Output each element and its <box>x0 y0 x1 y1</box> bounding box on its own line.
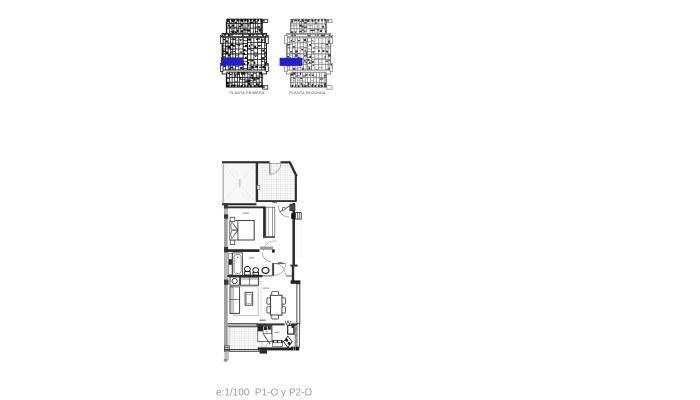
svg-text:e:1/100 P1-O y P2-O: e:1/100 P1-O y P2-O <box>216 387 312 398</box>
svg-text:PLANTA SEGUNDA: PLANTA SEGUNDA <box>289 91 326 95</box>
svg-text:PLANTA PRIMERA: PLANTA PRIMERA <box>229 91 264 95</box>
